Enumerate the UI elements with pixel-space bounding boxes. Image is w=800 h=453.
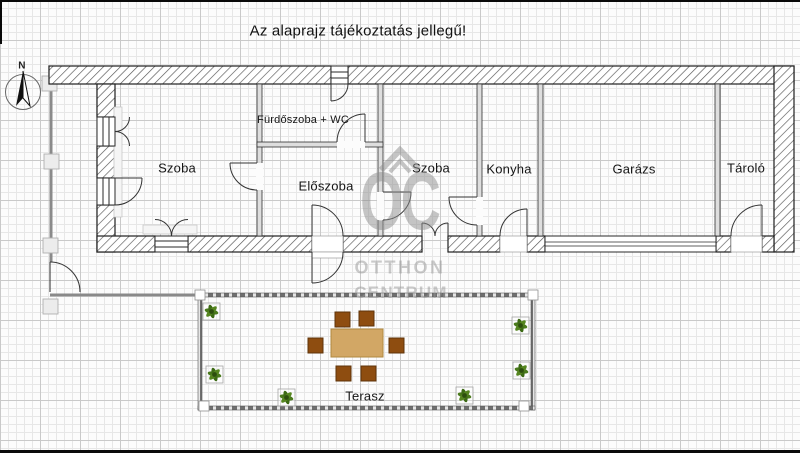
plan-disclaimer-title: Az alaprajz tájékoztatás jellegű! bbox=[250, 23, 467, 40]
window bbox=[97, 117, 115, 146]
garden-gate-door bbox=[50, 262, 80, 292]
window bbox=[97, 178, 115, 205]
plant-icon bbox=[278, 389, 295, 406]
chair bbox=[359, 311, 374, 326]
image-edge bbox=[0, 0, 800, 2]
plant-icon bbox=[203, 303, 220, 320]
chair bbox=[361, 366, 376, 381]
chair bbox=[336, 366, 351, 381]
room-label-garazs: Garázs bbox=[612, 162, 655, 177]
window bbox=[155, 236, 188, 252]
chair bbox=[308, 338, 323, 353]
plant-icon bbox=[206, 366, 223, 383]
image-edge bbox=[0, 0, 2, 44]
terrace-dining-set bbox=[308, 311, 404, 381]
room-label-furdoszoba: Fürdőszoba + WC bbox=[257, 114, 349, 126]
door-swings bbox=[115, 84, 762, 283]
room-label-konyha: Konyha bbox=[486, 162, 531, 177]
compass-needle-icon bbox=[16, 71, 23, 106]
room-label-terasz: Terasz bbox=[345, 389, 385, 404]
room-label-tarolo: Tároló bbox=[727, 161, 765, 176]
table bbox=[331, 329, 383, 357]
plant-icon bbox=[456, 387, 473, 404]
floor-plan-drawing bbox=[0, 0, 800, 453]
window bbox=[331, 66, 348, 84]
property-fence bbox=[50, 84, 198, 295]
north-label: N bbox=[18, 61, 25, 72]
room-label-szoba1: Szoba bbox=[158, 161, 196, 176]
partition-openings bbox=[256, 141, 483, 225]
chair bbox=[389, 338, 404, 353]
partition-walls bbox=[257, 84, 720, 236]
room-label-eloszoba: Előszoba bbox=[298, 179, 353, 194]
floor-plan-canvas: Az alaprajz tájékoztatás jellegű! N Szob… bbox=[0, 0, 800, 453]
garage-door bbox=[545, 236, 716, 252]
chair bbox=[335, 312, 350, 327]
north-compass bbox=[6, 71, 41, 110]
plant-icon bbox=[513, 362, 530, 379]
windows bbox=[97, 66, 348, 252]
room-label-szoba2: Szoba bbox=[412, 161, 450, 176]
plant-icon bbox=[512, 317, 529, 334]
